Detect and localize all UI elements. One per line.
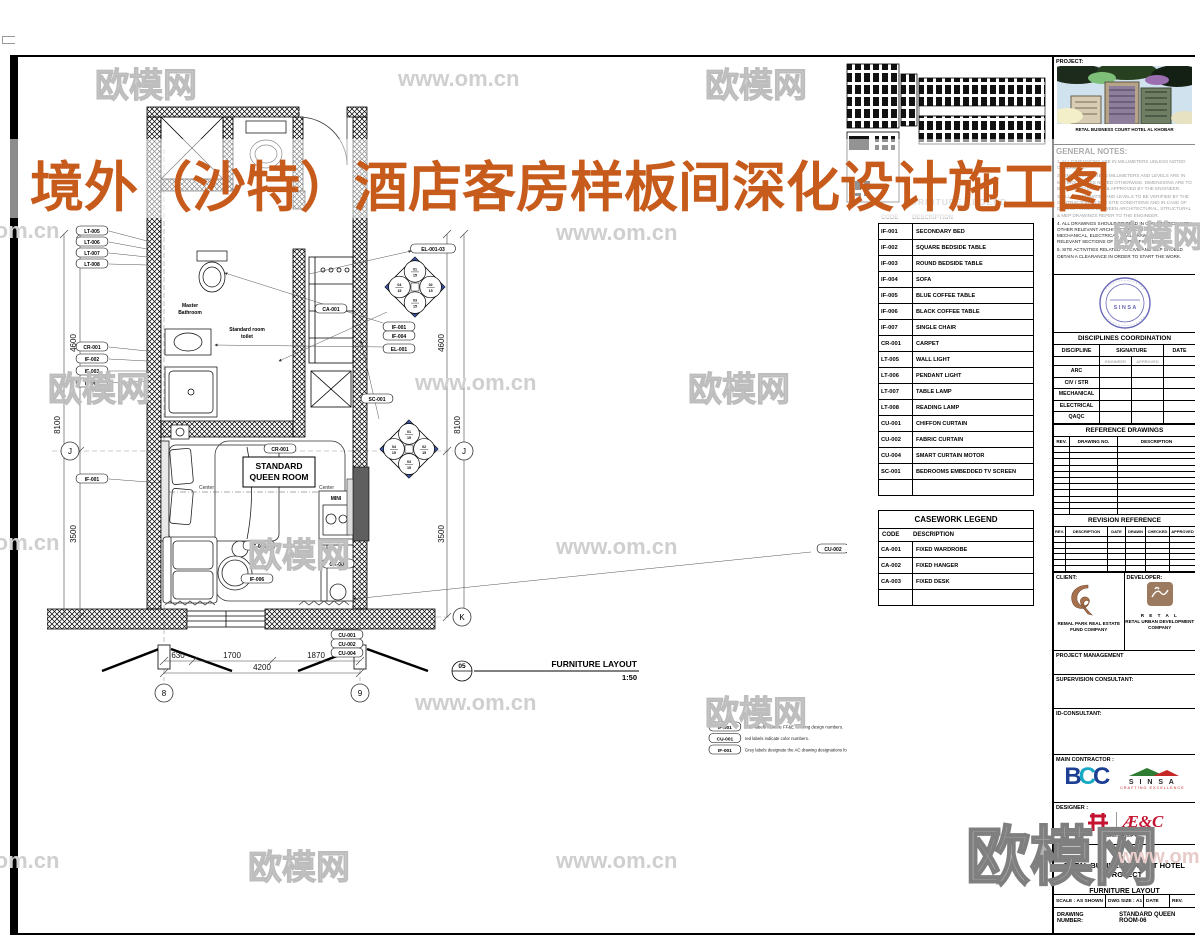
client-cell: CLIENT: REMAL PARK REAL ESTATE FUND COMP… [1054,573,1125,650]
developer-name: RETAL URBAN DEVELOPMENT COMPANY [1125,619,1196,631]
svg-text:CU-004: CU-004 [338,651,355,657]
svg-text:IF-001: IF-001 [718,748,732,754]
plan-notes: IF-001Blue labels indicate FF&E drawing … [709,722,847,754]
svg-text:15: 15 [392,451,396,455]
legend-row: CA-001FIXED WARDROBE [879,542,1033,558]
stamp-section: S I N S A [1054,275,1195,333]
legend-row: LT-006PENDANT LIGHT [879,368,1033,384]
company-stamp: S I N S A [1054,275,1195,331]
svg-text:EL-001: EL-001 [391,347,408,353]
dims-left [60,230,84,621]
elevation-markers: 01150215031504150115021503150415 [380,257,445,478]
room-label: STANDARD QUEEN ROOM [243,457,315,487]
svg-text:04: 04 [392,445,396,449]
svg-text:LT-006: LT-006 [84,240,100,246]
doc-title-drawing: FURNITURE LAYOUT [1054,888,1195,895]
svg-text:red labels indicate color numb: red labels indicate color numbers. [745,736,809,741]
designer-section: DESIGNER : Æ&C AE&C GROUP PLC [1054,803,1195,845]
svg-text:1870: 1870 [307,651,325,660]
svg-text:CA-003: CA-003 [329,562,346,568]
supervision-label: SUPERVISION CONSULTANT: [1054,675,1195,683]
revision-reference-title: REVISION REFERENCE [1054,515,1195,526]
minibar-label: MINI [331,496,342,502]
discipline-row: MECHANICAL [1054,388,1195,400]
legend-row: IF-003ROUND BEDSIDE TABLE [879,256,1033,272]
svg-text:15: 15 [407,436,411,440]
toilet-1: Standard room [229,327,265,333]
discipline-row: CIV / STR [1054,377,1195,389]
svg-text:8100: 8100 [53,416,62,434]
svg-text:CU-002: CU-002 [824,547,841,553]
svg-text:CR-001: CR-001 [83,345,100,351]
legend-row: IF-004SOFA [879,272,1033,288]
svg-text:8100: 8100 [453,416,462,434]
scale-label: SCALE : [1056,899,1075,904]
main-contractor-section: MAIN CONTRACTOR : BCC S I N S A CRAFTING… [1054,755,1195,803]
legend-row: CA-003FIXED DESK [879,574,1033,590]
id-consultant-label: ID-CONSULTANT: [1054,709,1195,717]
project-image [1057,66,1192,124]
client-name: REMAL PARK REAL ESTATE FUND COMPANY [1054,621,1124,633]
revision-reference-section: REVISION REFERENCE REV.DESCRIPTIONDATEDR… [1054,515,1195,573]
developer-label: DEVELOPER: [1125,573,1196,581]
svg-text:CA-001: CA-001 [322,307,339,313]
doc-title-project: RETAL BUSINESS COURT HOTEL PROJECT [1054,861,1195,879]
wardrobe [309,257,353,407]
designer-label: DESIGNER : [1054,803,1195,811]
svg-text:15: 15 [429,289,433,293]
revision-reference-header: REV.DESCRIPTIONDATEDRAWNCHECKEDAPPROVED [1054,526,1195,536]
master-bath-2: Bathroom [178,310,202,316]
page: { "watermark": {"brand": "欧模网", "url": "… [0,0,1200,950]
svg-text:IF-001: IF-001 [392,325,407,331]
legend-row: IF-001SECONDARY BED [879,224,1033,240]
svg-text:630: 630 [171,651,185,660]
svg-text:4600: 4600 [437,334,446,352]
legend-row: CA-002FIXED HANGER [879,558,1033,574]
svg-text:02: 02 [429,283,433,287]
developer-cell: DEVELOPER: R E T A L RETAL URBAN DEVELOP… [1125,573,1196,650]
legend-row: IF-007SINGLE CHAIR [879,320,1033,336]
project-label: PROJECT: [1054,57,1195,65]
disciplines-title: DISCIPLINES COORDINATION [1054,333,1195,344]
designer-sub: AE&C GROUP PLC [1054,833,1195,838]
bcc-logo: BCC [1064,763,1107,791]
client-developer-section: CLIENT: REMAL PARK REAL ESTATE FUND COMP… [1054,573,1195,651]
discipline-row: ELECTRICAL [1054,400,1195,412]
svg-text:04: 04 [397,283,401,287]
window [187,611,265,627]
svg-text:IF-001: IF-001 [718,725,732,731]
svg-text:1:50: 1:50 [622,673,637,682]
legend-row: CU-001CHIFFON CURTAIN [879,416,1033,432]
reference-drawings-header: REV. DRAWING NO. DESCRIPTION [1054,436,1195,446]
svg-text:03: 03 [413,299,417,303]
view-title: 05 FURNITURE LAYOUT 1:50 [452,659,639,682]
svg-text:4200: 4200 [253,663,271,672]
project-section: PROJECT: RETAL BUSINESS COURT HOTEL AL K… [1054,57,1195,145]
svg-text:01: 01 [413,267,417,271]
svg-text:IF-002: IF-002 [85,357,100,363]
svg-text:IF-004: IF-004 [392,334,407,340]
svg-text:CU-001: CU-001 [338,633,355,639]
disciplines-header: DISCIPLINE SIGNATURE DATE [1054,344,1195,356]
reference-drawings-rows [1054,446,1195,515]
project-caption: RETAL BUSINESS COURT HOTEL AL KHOBAR [1054,127,1195,133]
disciplines-rows: ARCCIV / STRMECHANICALELECTRICALQAQCFLS [1054,365,1195,425]
client-label: CLIENT: [1054,573,1124,581]
svg-text:IF-004: IF-004 [85,381,100,387]
drawing-number-section: DRAWING NUMBER: STANDARD QUEEN ROOM-06 [1054,908,1195,928]
legend-row: CU-004SMART CURTAIN MOTOR [879,448,1033,464]
svg-text:15: 15 [413,273,417,277]
svg-text:J: J [68,447,72,456]
svg-text:IF-001: IF-001 [85,477,100,483]
casework-legend-header: CODE DESCRIPTION [878,528,1034,541]
svg-text:15: 15 [413,305,417,309]
legend-panel: FURNITURE LEGEND CODE DESCRIPTION IF-001… [878,197,1034,606]
aec-logo: Æ&C [1123,812,1164,832]
legend-row: IF-006BLACK COFFEE TABLE [879,304,1033,320]
svg-text:01: 01 [407,430,411,434]
svg-text:03: 03 [407,460,411,464]
svg-text:K: K [459,613,465,622]
reference-drawings-title: REFERENCE DRAWINGS [1054,425,1195,436]
svg-text:3500: 3500 [69,525,78,543]
designer-seal-icon [1086,811,1110,833]
dwg-size-value: A1 [1136,899,1142,904]
svg-text:IF-003: IF-003 [85,369,100,375]
svg-text:LT-005: LT-005 [84,229,100,235]
disciplines-subheader: ENGINEER APPROVED [1054,356,1195,365]
legend-row: CU-002FABRIC CURTAIN [879,432,1033,448]
casework-legend-table: CA-001FIXED WARDROBECA-002FIXED HANGERCA… [878,541,1034,606]
svg-text:IF-005: IF-005 [252,544,267,550]
developer-logo [1125,581,1193,611]
revision-reference-rows [1054,536,1195,573]
master-bath-1: Master [182,303,198,309]
reference-drawings-section: REFERENCE DRAWINGS REV. DRAWING NO. DESC… [1054,425,1195,515]
date-label: DATE [1144,895,1170,907]
svg-text:3500: 3500 [437,525,446,543]
svg-text:LT-008: LT-008 [84,262,100,268]
id-consultant-section: ID-CONSULTANT: [1054,709,1195,755]
svg-text:FURNITURE LAYOUT: FURNITURE LAYOUT [551,659,637,669]
furniture-legend-table: IF-001SECONDARY BEDIF-002SQUARE BEDSIDE … [878,223,1034,496]
svg-text:SC-001: SC-001 [369,397,386,403]
svg-text:1700: 1700 [223,651,241,660]
svg-text:EL-001-03: EL-001-03 [421,247,445,253]
casework-legend-title: CASEWORK LEGEND [878,510,1034,528]
svg-text:STANDARD: STANDARD [255,461,302,471]
center-label-left: Center [199,485,214,491]
sheet-title-label: TITLE : [1054,845,1195,853]
svg-text:LT-007: LT-007 [84,251,100,257]
discipline-row: QAQC [1054,411,1195,423]
legend-row: IF-005BLUE COFFEE TABLE [879,288,1033,304]
scale-value: AS SHOWN [1077,899,1103,904]
legend-row: CR-001CARPET [879,336,1033,352]
svg-text:8: 8 [162,689,167,698]
svg-text:15: 15 [407,466,411,470]
svg-text:Blue labels indicate FF&E draw: Blue labels indicate FF&E drawing design… [745,725,843,730]
page-corner-mark [2,36,15,44]
svg-text:IF-006: IF-006 [250,577,265,583]
sinsa-mountains [1123,765,1181,777]
sofa [163,537,217,603]
legend-row: LT-005WALL LIGHT [879,352,1033,368]
svg-text:CR-001: CR-001 [271,447,288,453]
svg-text:05: 05 [458,663,466,670]
chinese-title: 境外（沙特）酒店客房样板间深化设计施工图 [30,143,1195,222]
dims-left-labels: 4600 3500 8100 [53,334,78,543]
supervision-section: SUPERVISION CONSULTANT: [1054,675,1195,709]
rev-label: REV. [1170,895,1195,907]
project-management-label: PROJECT MANAGEMENT [1054,651,1195,659]
drawing-number-value: STANDARD QUEEN ROOM-06 [1119,912,1195,924]
svg-text:CU-001: CU-001 [717,737,734,743]
main-contractor-label: MAIN CONTRACTOR : [1054,755,1195,763]
legend-row: LT-008READING LAMP [879,400,1033,416]
tv-niche [347,467,369,541]
dims-right-labels: 4600 3500 8100 [437,334,462,543]
toilet-2: toilet [241,334,253,340]
svg-text:S I N S A: S I N S A [1114,305,1137,311]
sheet-title-section: TITLE : RETAL BUSINESS COURT HOTEL PROJE… [1054,845,1195,895]
legend-row: IF-002SQUARE BEDSIDE TABLE [879,240,1033,256]
svg-text:15: 15 [422,451,426,455]
client-logo [1054,581,1122,619]
disciplines-section: DISCIPLINES COORDINATION DISCIPLINE SIGN… [1054,333,1195,425]
discipline-row: ARC [1054,365,1195,377]
legend-row: LT-007TABLE LAMP [879,384,1033,400]
legend-row: SC-001BEDROOMS EMBEDDED TV SCREEN [879,464,1033,480]
svg-text:J: J [462,447,466,456]
dwg-size-label: DWG SIZE : [1108,899,1135,904]
svg-text:Grey labels designate the AC d: Grey labels designate the AC drawing des… [745,748,847,753]
drawing-number-label: DRAWING NUMBER: [1054,912,1105,924]
scale-section: SCALE : AS SHOWN DWG SIZE : A1 DATE REV. [1054,895,1195,908]
center-label-right: Center [319,485,334,491]
project-management-section: PROJECT MANAGEMENT [1054,651,1195,675]
svg-text:9: 9 [358,689,363,698]
sinsa-logo: S I N S A CRAFTING EXCELLENCE [1120,765,1185,790]
svg-text:CU-002: CU-002 [338,642,355,648]
bathroom-fixtures [165,251,227,417]
svg-text:QUEEN ROOM: QUEEN ROOM [249,472,308,482]
svg-text:02: 02 [422,445,426,449]
svg-text:15: 15 [397,289,401,293]
